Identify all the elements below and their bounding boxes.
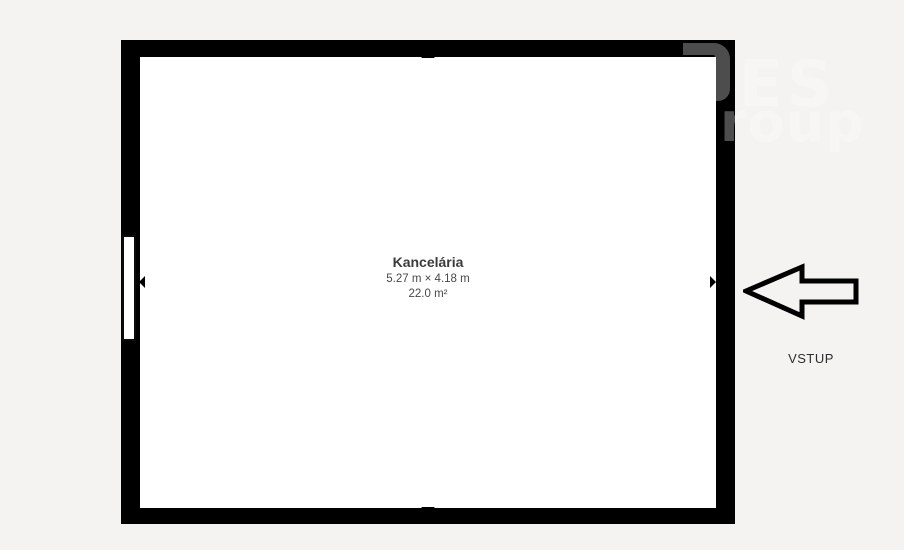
entrance-label: VSTUP (771, 351, 851, 366)
watermark-line1: ES (739, 53, 837, 117)
room-label-block: Kancelária 5.27 m × 4.18 m 22.0 m² (140, 255, 716, 302)
room-area: 22.0 m² (140, 287, 716, 302)
wall-marker-right-icon (710, 276, 716, 288)
room-name: Kancelária (140, 255, 716, 270)
wall-marker-left-icon (139, 276, 145, 288)
room-dimensions: 5.27 m × 4.18 m (140, 272, 716, 287)
watermark-line2: roup (720, 96, 865, 150)
floor-plan-canvas[interactable]: Kancelária 5.27 m × 4.18 m 22.0 m² (121, 40, 735, 524)
wall-marker-top-icon (421, 52, 435, 58)
wall-marker-bottom-icon (421, 507, 435, 513)
entrance-arrow-icon (743, 262, 861, 322)
window-symbol (122, 235, 136, 341)
